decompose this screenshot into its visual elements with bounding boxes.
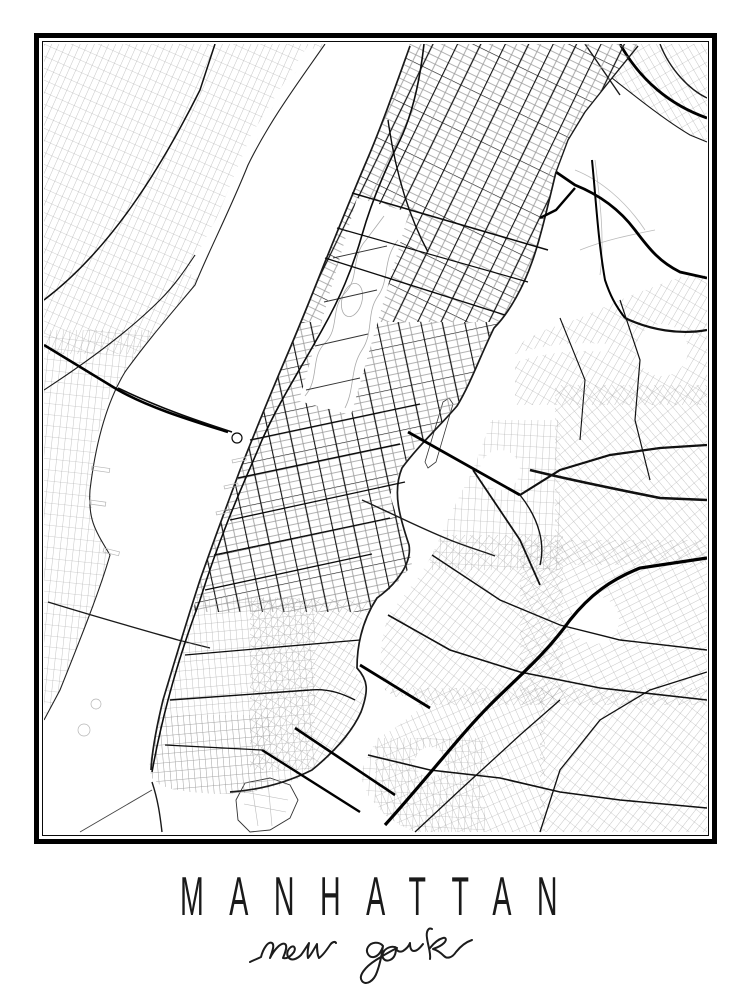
- script-k-leg: [430, 938, 472, 958]
- ferry-route: [80, 790, 152, 832]
- map-image: [44, 44, 707, 833]
- script-word-york-part1: [361, 943, 423, 983]
- poster-title: MANHATTAN: [180, 869, 570, 924]
- script-k-stem: [427, 929, 432, 959]
- poster-subtitle-script: [240, 918, 500, 998]
- lincoln-tunnel-helix: [232, 433, 242, 443]
- script-word-new: [250, 942, 336, 962]
- lincoln-tunnel: [118, 388, 232, 432]
- battery-tunnel: [152, 782, 162, 832]
- rfk-bridge: [556, 172, 707, 278]
